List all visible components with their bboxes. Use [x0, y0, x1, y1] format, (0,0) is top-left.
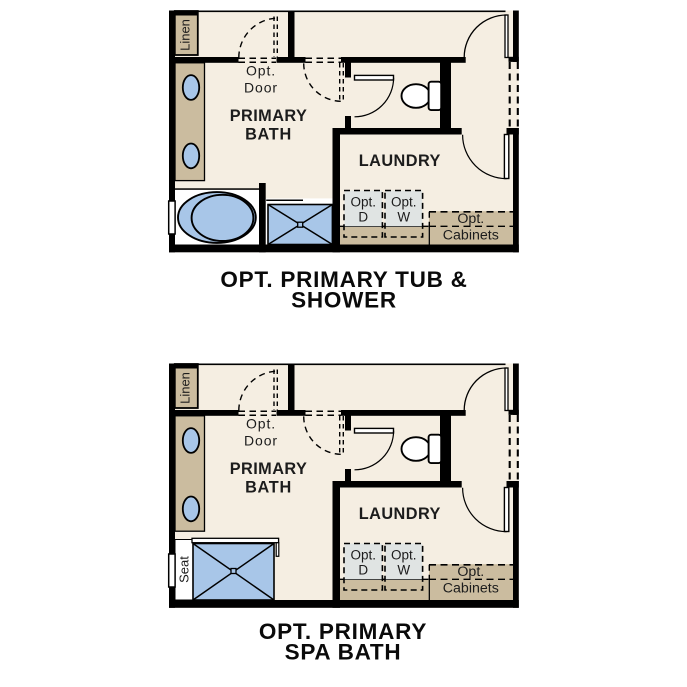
svg-text:Opt.: Opt.	[246, 63, 276, 79]
svg-text:PRIMARY: PRIMARY	[230, 107, 308, 125]
svg-text:Opt.: Opt.	[350, 548, 376, 563]
svg-text:SHOWER: SHOWER	[291, 288, 397, 313]
svg-text:Seat: Seat	[177, 556, 192, 583]
svg-text:LAUNDRY: LAUNDRY	[359, 505, 441, 523]
svg-text:Linen: Linen	[178, 19, 193, 51]
svg-text:Opt.: Opt.	[391, 195, 417, 210]
svg-text:Door: Door	[244, 433, 278, 449]
svg-text:W: W	[397, 563, 410, 578]
svg-text:PRIMARY: PRIMARY	[230, 460, 308, 478]
svg-text:Opt.: Opt.	[391, 548, 417, 563]
svg-text:W: W	[397, 210, 410, 225]
svg-text:Opt.: Opt.	[246, 416, 276, 432]
svg-text:BATH: BATH	[245, 126, 292, 144]
svg-text:Opt.: Opt.	[457, 564, 484, 580]
svg-text:LAUNDRY: LAUNDRY	[359, 152, 441, 170]
svg-text:Cabinets: Cabinets	[443, 581, 499, 597]
svg-text:Linen: Linen	[178, 372, 193, 404]
svg-text:D: D	[358, 563, 368, 578]
svg-text:BATH: BATH	[245, 479, 292, 497]
svg-text:Cabinets: Cabinets	[443, 228, 499, 244]
svg-text:SPA BATH: SPA BATH	[285, 640, 402, 665]
svg-text:Opt.: Opt.	[350, 195, 376, 210]
svg-text:Door: Door	[244, 80, 278, 96]
svg-text:D: D	[358, 210, 368, 225]
svg-text:Opt.: Opt.	[457, 211, 484, 227]
